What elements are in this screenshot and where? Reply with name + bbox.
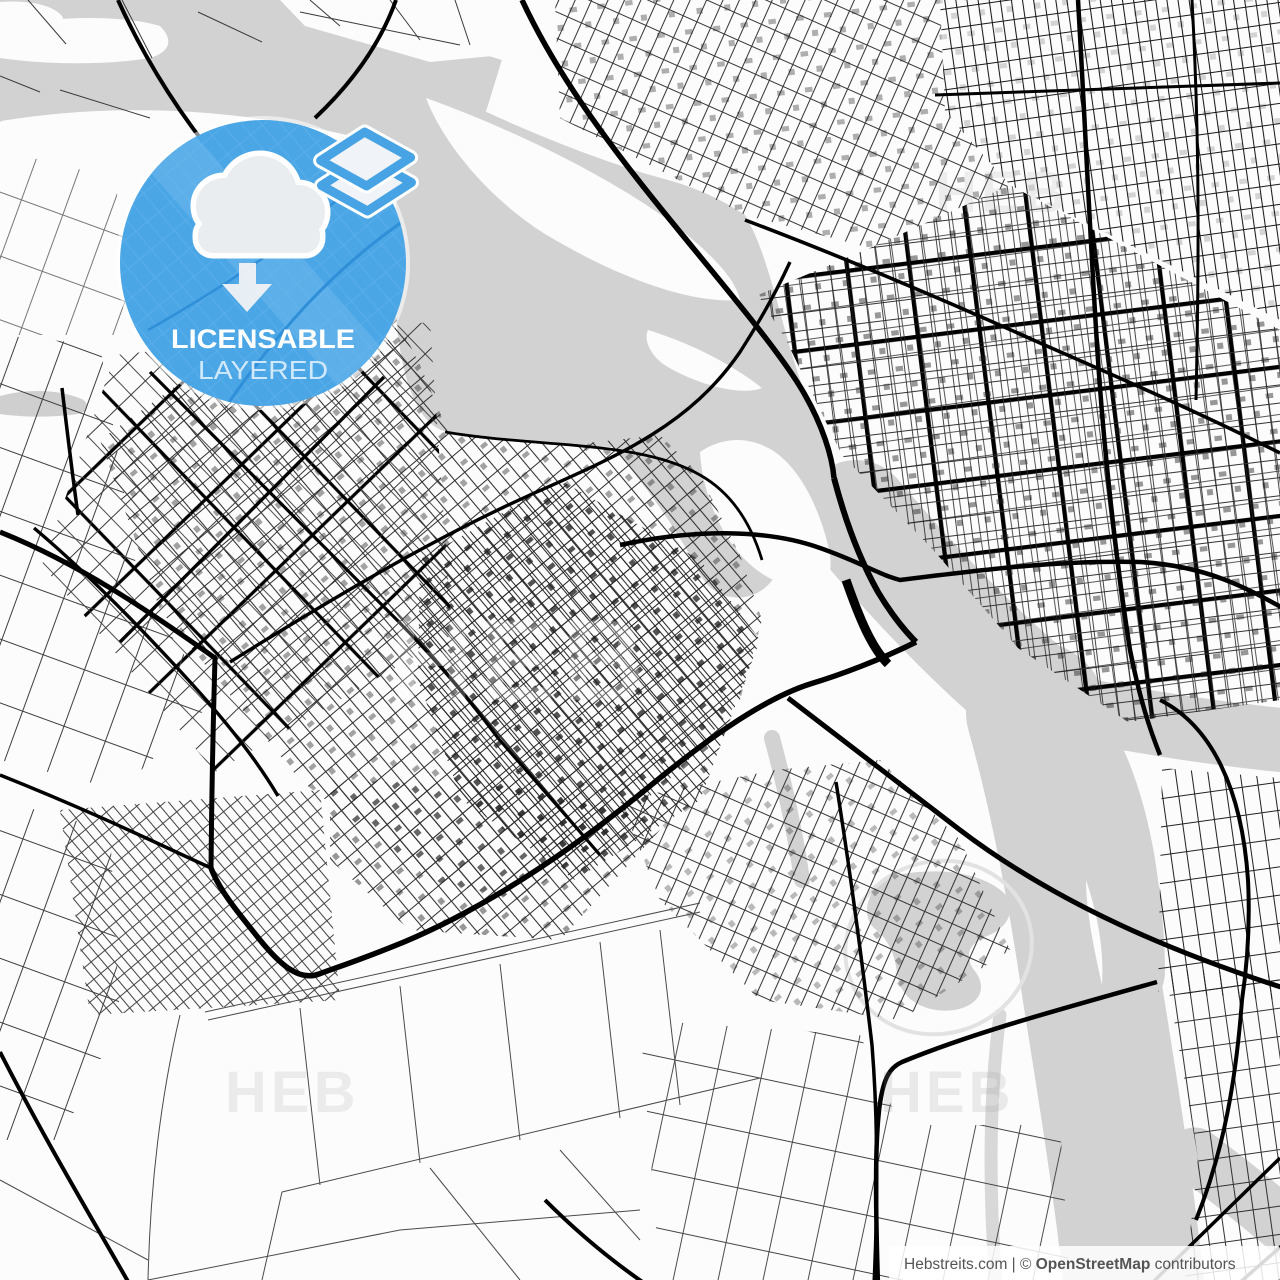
svg-text:HEB: HEB [225,1060,359,1125]
svg-text:LAYERED: LAYERED [198,355,328,385]
svg-text:HEB: HEB [390,597,651,725]
svg-text:HEB: HEB [935,160,1069,225]
svg-text:Hebstreits.com | © OpenStreetM: Hebstreits.com | © OpenStreetMap contrib… [904,1256,1236,1273]
svg-text:LICENSABLE: LICENSABLE [171,324,355,354]
svg-text:HEB: HEB [880,1060,1014,1125]
